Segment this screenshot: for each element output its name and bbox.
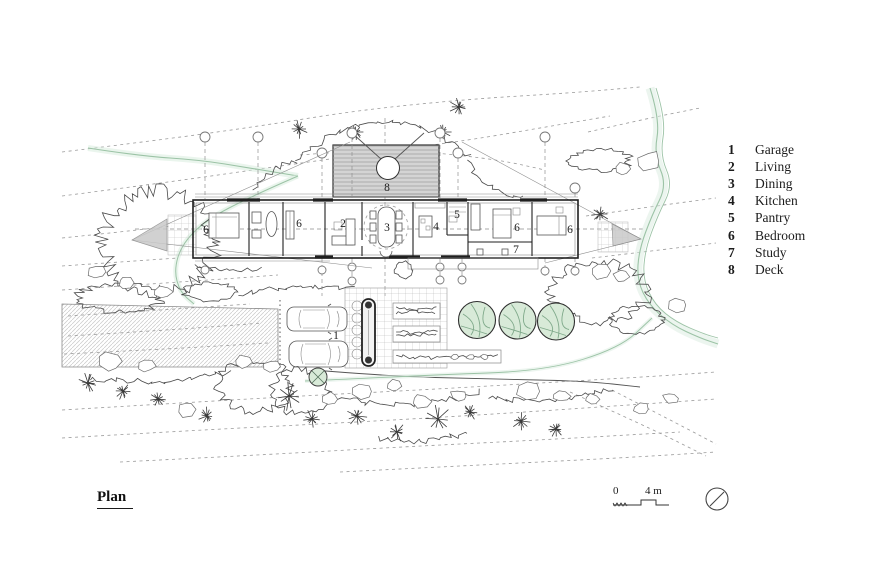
shrub-band xyxy=(90,371,231,384)
room-label-pantry: 5 xyxy=(454,209,460,221)
plant-star xyxy=(292,120,308,139)
rock xyxy=(613,270,630,281)
small-tree-outline xyxy=(394,261,413,279)
room-label-study: 7 xyxy=(513,244,519,256)
plant-star xyxy=(199,407,213,423)
tree-canopy xyxy=(459,302,496,339)
legend-number: 4 xyxy=(728,193,755,209)
plant-star xyxy=(79,373,96,392)
rock xyxy=(413,395,432,409)
shrub-arc xyxy=(467,160,522,198)
room-label-dining: 3 xyxy=(384,222,390,234)
plant-star xyxy=(116,385,131,400)
toilet xyxy=(252,212,261,223)
stool xyxy=(502,249,508,255)
contour-line xyxy=(62,87,640,152)
rock xyxy=(179,403,196,417)
rock xyxy=(553,391,571,401)
legend-label: Dining xyxy=(755,176,793,192)
rock xyxy=(669,298,686,313)
grid-marker xyxy=(570,183,580,193)
rock xyxy=(322,392,337,404)
grid-marker xyxy=(458,276,466,284)
grid-marker xyxy=(253,132,263,142)
legend-label: Kitchen xyxy=(755,193,798,209)
rock xyxy=(387,379,401,390)
study-deck xyxy=(408,258,538,269)
bench-end xyxy=(365,357,372,364)
grid-marker xyxy=(200,132,210,142)
car-body xyxy=(287,307,347,331)
car-body xyxy=(289,341,348,367)
plant-star xyxy=(150,393,166,406)
planting-bed xyxy=(393,326,440,342)
grid-marker xyxy=(201,266,209,274)
legend-row: 8Deck xyxy=(728,261,805,278)
contour-line xyxy=(588,108,700,132)
grid-marker xyxy=(453,148,463,158)
legend-row: 5Pantry xyxy=(728,210,805,227)
legend-row: 6Bedroom xyxy=(728,227,805,244)
chair xyxy=(370,211,376,219)
chair xyxy=(396,211,402,219)
scale-start: 0 xyxy=(613,485,619,497)
bench-end xyxy=(365,302,372,309)
rock xyxy=(264,361,281,372)
rock xyxy=(88,266,106,277)
nightstand xyxy=(556,207,563,213)
legend-number: 6 xyxy=(728,228,755,244)
contour-line xyxy=(340,452,716,472)
sofa xyxy=(346,219,355,245)
plant-star xyxy=(464,405,477,419)
legend-number: 3 xyxy=(728,176,755,192)
chair xyxy=(370,235,376,243)
grid-marker xyxy=(348,263,356,271)
legend-row: 7Study xyxy=(728,244,805,261)
tree xyxy=(499,302,536,339)
tree xyxy=(459,302,496,339)
legend-label: Living xyxy=(755,159,791,175)
contour-line xyxy=(62,399,716,438)
rock xyxy=(663,394,679,403)
plant-star xyxy=(549,424,562,437)
legend-label: Study xyxy=(755,245,787,261)
legend-row: 4Kitchen xyxy=(728,193,805,210)
scale-end: 4 m xyxy=(645,485,662,497)
car xyxy=(289,338,348,370)
grid-marker xyxy=(436,276,444,284)
hedge xyxy=(238,285,354,296)
grid-marker xyxy=(435,128,445,138)
room-label-garage: 1 xyxy=(333,330,339,342)
legend-number: 1 xyxy=(728,142,755,158)
grid-marker xyxy=(541,267,549,275)
legend-number: 5 xyxy=(728,210,755,226)
rock xyxy=(517,382,540,400)
plant-star xyxy=(390,425,403,442)
north-needle xyxy=(710,492,724,506)
room-label-bedroom: 6 xyxy=(203,224,209,236)
deck-tree-opening xyxy=(377,157,400,180)
nightstand xyxy=(513,208,520,215)
chair xyxy=(396,223,402,231)
grid-marker xyxy=(436,263,444,271)
legend: 1Garage 2Living 3Dining 4Kitchen 5Pantry… xyxy=(728,141,805,279)
room-label-bedroom: 6 xyxy=(514,222,520,234)
grid-marker xyxy=(318,266,326,274)
legend-row: 3Dining xyxy=(728,175,805,192)
rock xyxy=(638,152,659,171)
legend-label: Pantry xyxy=(755,210,790,226)
rock xyxy=(593,264,611,279)
stool xyxy=(477,249,483,255)
contour-line xyxy=(62,258,178,266)
room-label-bedroom: 6 xyxy=(567,224,573,236)
room-label-kitchen: 4 xyxy=(433,221,439,233)
plant-star xyxy=(513,412,530,430)
legend-label: Garage xyxy=(755,142,794,158)
legend-number: 2 xyxy=(728,159,755,175)
contour-line xyxy=(120,432,680,462)
grid-marker xyxy=(347,128,357,138)
view-triangle-west xyxy=(132,219,167,251)
chair xyxy=(396,235,402,243)
legend-row: 1Garage xyxy=(728,141,805,158)
tree-canopy xyxy=(499,302,536,339)
plan-sheet: 1 2 3 4 5 6 6 6 6 7 8 0 4 m 1Garage 2Liv… xyxy=(0,0,875,583)
legend-number: 7 xyxy=(728,245,755,261)
closet xyxy=(471,204,480,230)
rock xyxy=(154,286,173,298)
grid-marker xyxy=(348,277,356,285)
sink xyxy=(252,230,261,238)
rock xyxy=(586,393,600,404)
rock xyxy=(352,384,371,399)
bathtub xyxy=(266,212,277,237)
grid-marker xyxy=(571,267,579,275)
room-label-bedroom: 6 xyxy=(296,218,302,230)
legend-number: 8 xyxy=(728,262,755,278)
bed xyxy=(537,216,566,235)
scale-bar: 0 4 m xyxy=(613,485,669,506)
tree-canopy xyxy=(538,303,575,340)
legend-row: 2Living xyxy=(728,158,805,175)
plan-title: Plan xyxy=(97,489,133,509)
legend-label: Bedroom xyxy=(755,228,805,244)
room-label-living: 2 xyxy=(340,218,346,230)
kitchen-counter xyxy=(415,203,445,208)
small-tree xyxy=(309,368,327,386)
grid-marker xyxy=(540,132,550,142)
room-label-deck: 8 xyxy=(384,182,390,194)
north-indicator xyxy=(706,488,728,510)
bed xyxy=(493,209,511,238)
rock xyxy=(119,277,134,288)
tree xyxy=(538,303,575,340)
grid-marker xyxy=(458,263,466,271)
legend-label: Deck xyxy=(755,262,783,278)
trellis-west xyxy=(168,215,196,255)
rock xyxy=(451,391,466,401)
chair xyxy=(370,223,376,231)
